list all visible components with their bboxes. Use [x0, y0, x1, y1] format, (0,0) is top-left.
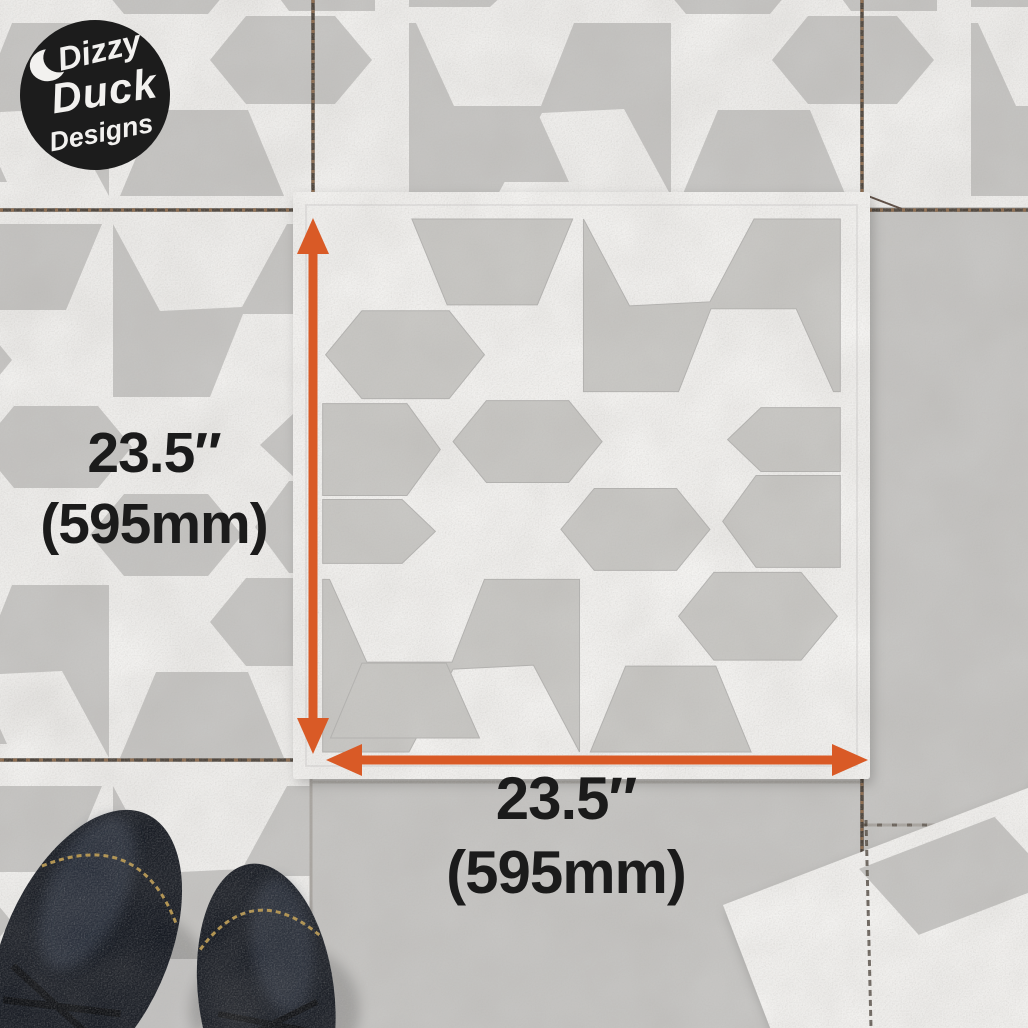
width-dimension-label: 23.5″ (595mm) — [408, 762, 724, 911]
height-mm: (595mm) — [4, 489, 304, 560]
product-photo: Dizzy Duck Designs 23.5″ (595mm) 23.5″ (… — [0, 0, 1028, 1028]
height-inches: 23.5″ — [4, 418, 304, 489]
width-inches: 23.5″ — [408, 762, 724, 836]
height-dimension-label: 23.5″ (595mm) — [4, 418, 304, 559]
width-mm: (595mm) — [408, 836, 724, 910]
